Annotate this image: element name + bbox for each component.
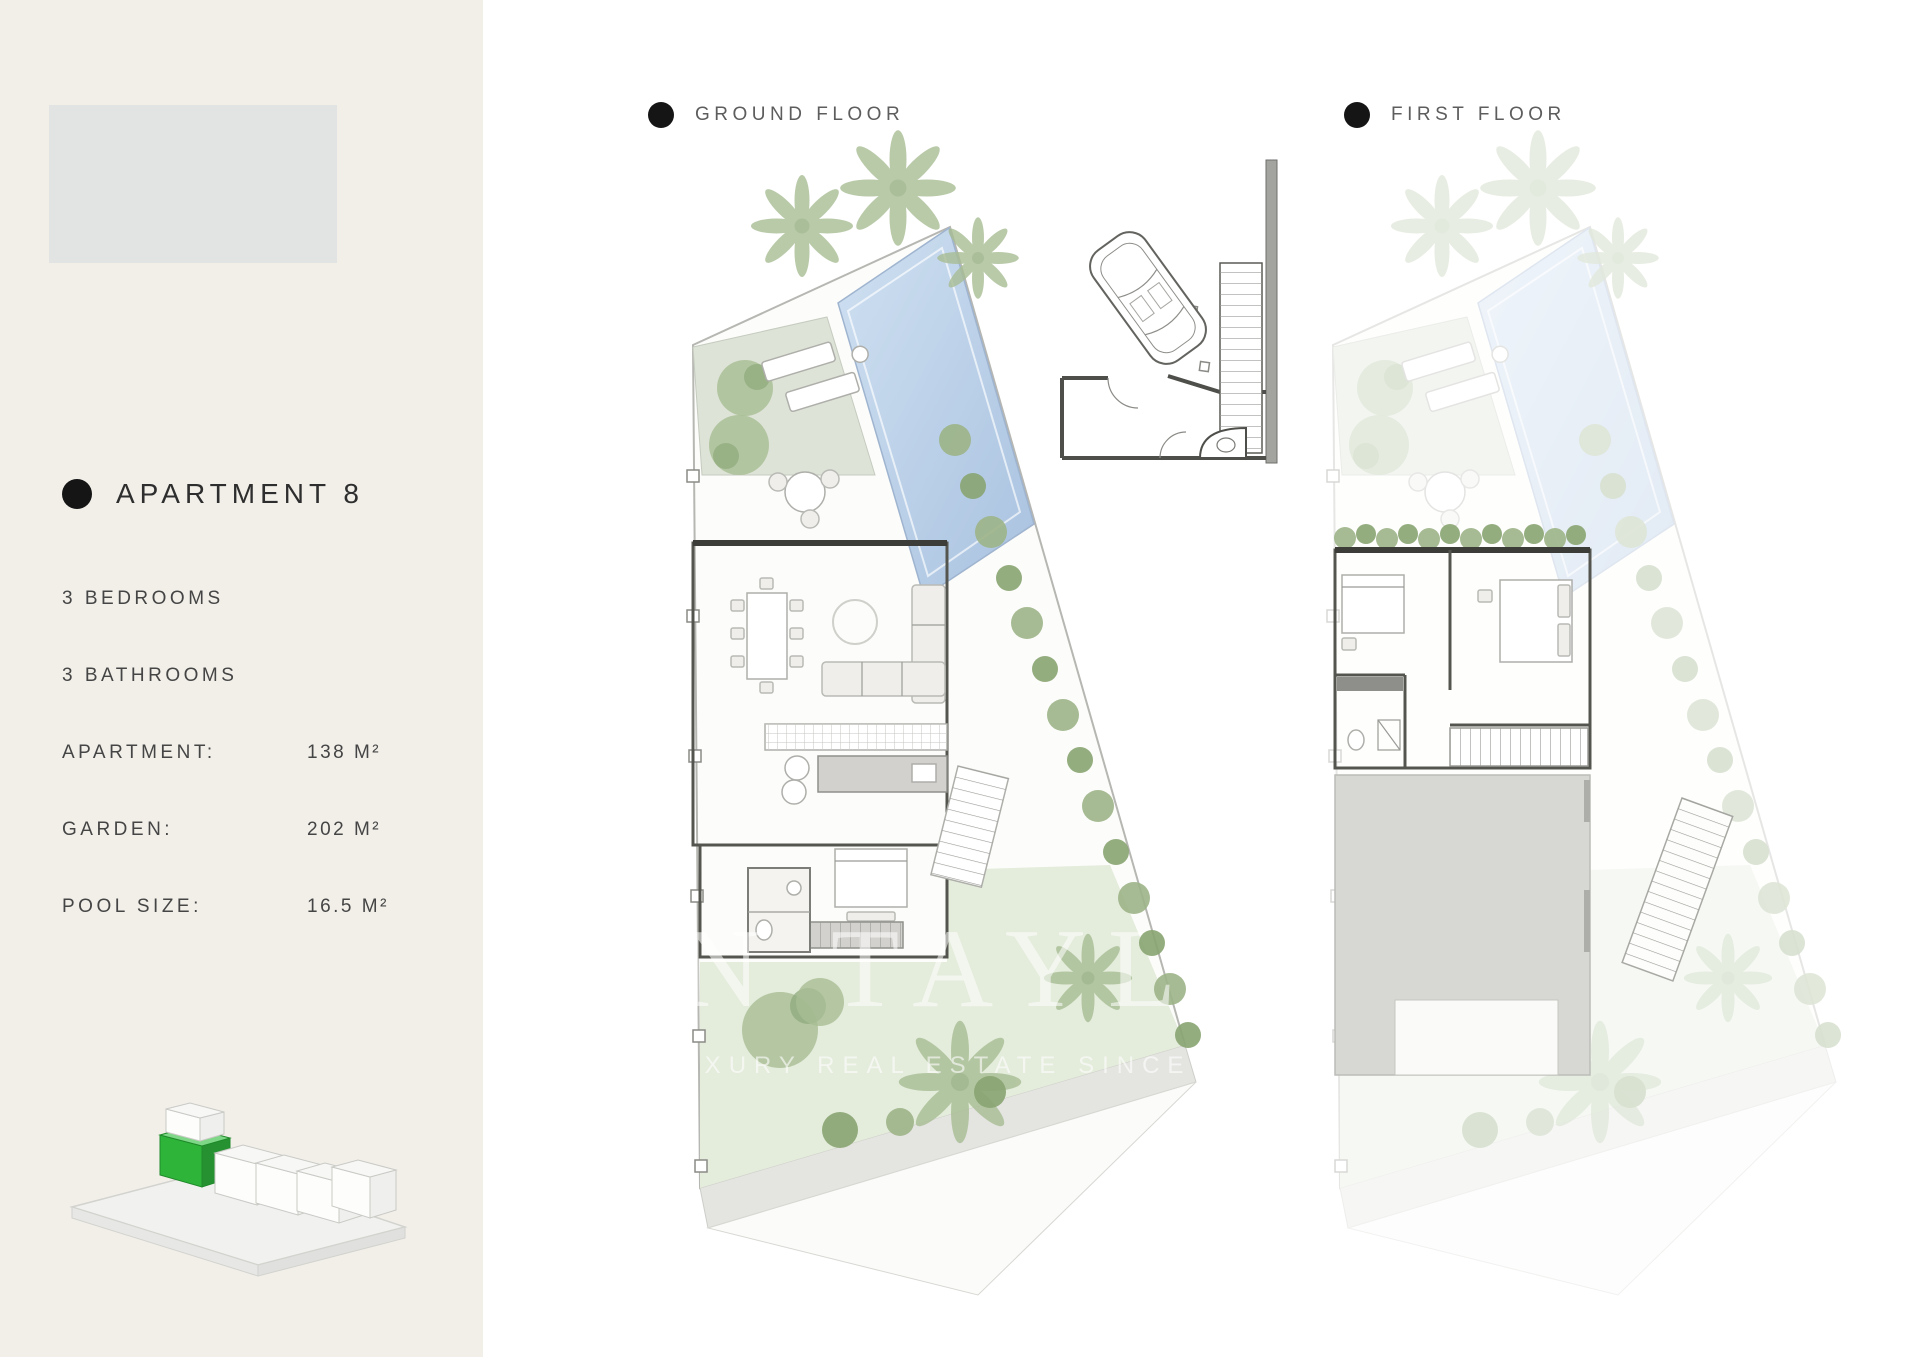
spec-row-pool-size: POOL SIZE: 16.5 M²: [62, 896, 422, 920]
logo-placeholder: [49, 105, 337, 263]
spec-list: 3 BEDROOMS 3 BATHROOMS APARTMENT: 138 M²…: [62, 588, 422, 973]
ground-floor-header: GROUND FLOOR: [648, 102, 904, 128]
apartment-title: APARTMENT 8: [116, 478, 364, 510]
spec-row-garden-area: GARDEN: 202 M²: [62, 819, 422, 843]
wc-corner: [1200, 428, 1246, 458]
first-floor-header: FIRST FLOOR: [1344, 102, 1566, 128]
ground-floor-label: GROUND FLOOR: [695, 104, 904, 126]
spec-value: 138 M²: [307, 742, 381, 764]
car: [1082, 224, 1214, 372]
bullet-icon: [1344, 102, 1370, 128]
bullet-icon: [62, 479, 92, 509]
brochure-page: APARTMENT 8 3 BEDROOMS 3 BATHROOMS APART…: [0, 0, 1920, 1357]
spec-label: GARDEN:: [62, 819, 173, 840]
building-locator-svg: [60, 1075, 410, 1310]
bullet-icon: [648, 102, 674, 128]
spec-label: POOL SIZE:: [62, 896, 202, 917]
spec-row-bedrooms: 3 BEDROOMS: [62, 588, 422, 612]
building-locator-illustration: [60, 1075, 410, 1310]
first-floor-plan: [1300, 130, 1880, 1320]
spec-value: 202 M²: [307, 819, 381, 841]
garage-entrance-detail: [1050, 140, 1300, 470]
spec-value: 16.5 M²: [307, 896, 389, 918]
spec-row-apartment-area: APARTMENT: 138 M²: [62, 742, 422, 766]
spec-label: APARTMENT:: [62, 742, 216, 763]
first-floor-label: FIRST FLOOR: [1391, 104, 1566, 126]
apartment-header: APARTMENT 8: [62, 478, 364, 510]
spec-row-bathrooms: 3 BATHROOMS: [62, 665, 422, 689]
interior-staircase: [1220, 263, 1262, 453]
sidebar: APARTMENT 8 3 BEDROOMS 3 BATHROOMS APART…: [0, 0, 483, 1357]
spec-label: 3 BEDROOMS: [62, 588, 224, 609]
spec-label: 3 BATHROOMS: [62, 665, 237, 686]
